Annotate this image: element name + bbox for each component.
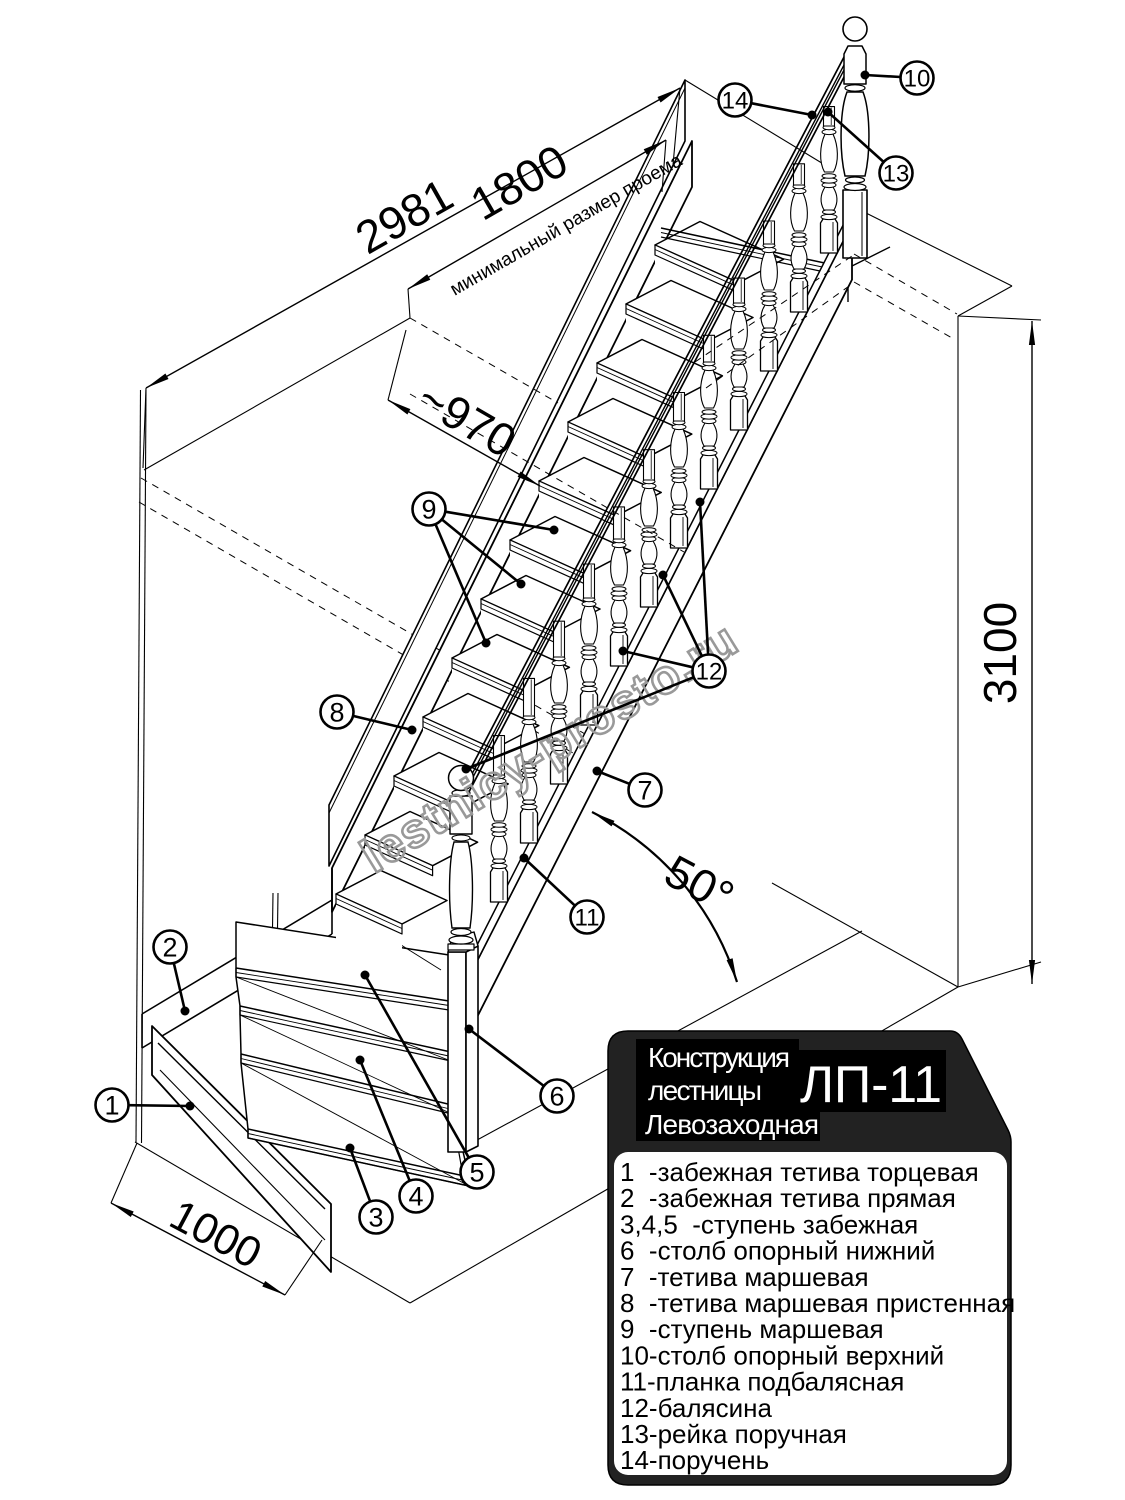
svg-text:8: 8 <box>329 698 344 728</box>
svg-text:13: 13 <box>883 160 910 187</box>
svg-text:4: 4 <box>408 1182 423 1212</box>
svg-text:лестницы: лестницы <box>648 1075 762 1106</box>
svg-text:11: 11 <box>575 904 600 931</box>
svg-text:14: 14 <box>722 87 749 114</box>
svg-text:9: 9 <box>421 495 436 525</box>
svg-text:10: 10 <box>904 65 931 92</box>
svg-text:1: 1 <box>104 1091 119 1121</box>
svg-text:3100: 3100 <box>974 602 1026 704</box>
svg-text:Левозаходная: Левозаходная <box>645 1109 819 1140</box>
svg-text:6: 6 <box>549 1082 564 1112</box>
svg-text:14-поручень: 14-поручень <box>620 1445 769 1475</box>
svg-text:3: 3 <box>368 1203 383 1233</box>
svg-text:2: 2 <box>162 933 177 963</box>
svg-text:7: 7 <box>637 776 652 806</box>
svg-text:Конструкция: Конструкция <box>648 1042 790 1073</box>
svg-text:ЛП-11: ЛП-11 <box>800 1056 942 1114</box>
svg-text:12: 12 <box>696 658 723 685</box>
svg-text:5: 5 <box>469 1158 484 1188</box>
